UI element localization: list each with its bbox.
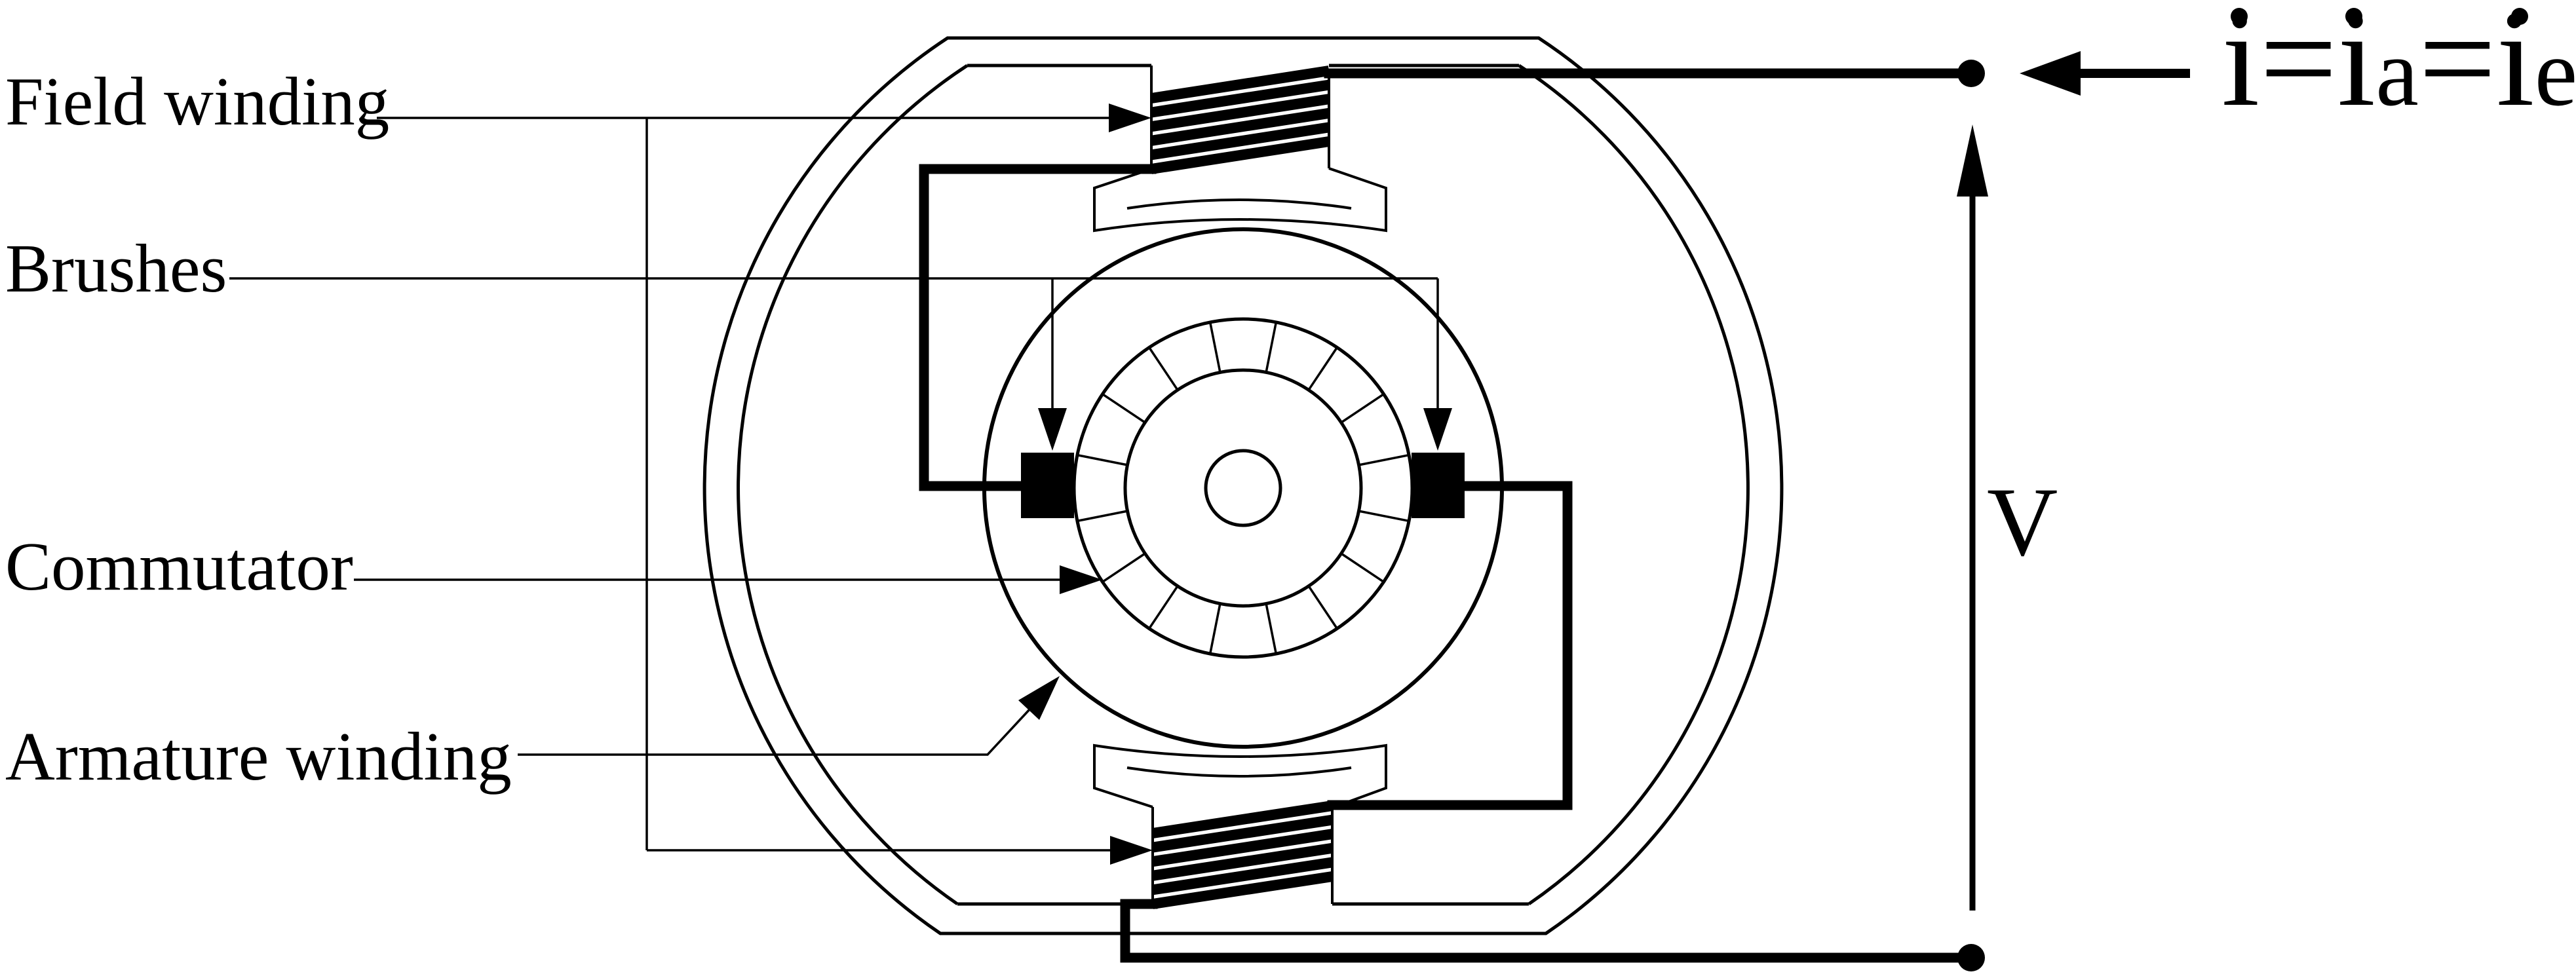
label-brushes: Brushes bbox=[5, 230, 227, 307]
label-field-winding: Field winding bbox=[5, 63, 389, 140]
dot-over-i3 bbox=[2511, 8, 2528, 25]
eq-sub-e: e bbox=[2535, 19, 2576, 126]
dot-over-i2 bbox=[2345, 8, 2362, 25]
pole-shoe-top-inner-arc bbox=[1127, 200, 1351, 208]
commutator-segment-divider bbox=[1266, 604, 1276, 654]
commutator-segment-divider bbox=[1210, 322, 1220, 373]
leader-brushes bbox=[229, 278, 1438, 409]
shaft-circle bbox=[1206, 451, 1280, 525]
brush-right bbox=[1412, 453, 1465, 518]
commutator-segment-divider bbox=[1149, 586, 1178, 629]
current-equation: i=ia=ie bbox=[2221, 0, 2576, 135]
pole-shoe-bottom-inner-arc bbox=[1127, 768, 1351, 776]
commutator-segment-divider bbox=[1103, 554, 1145, 582]
commutator-inner-circle bbox=[1125, 370, 1361, 606]
commutator-segment-divider bbox=[1359, 511, 1410, 521]
commutator-segment-divider bbox=[1077, 511, 1128, 521]
eq-sub-a: a bbox=[2375, 19, 2419, 126]
field-winding-arrowhead-bottom bbox=[1110, 836, 1153, 865]
commutator-segment-divider bbox=[1103, 394, 1145, 423]
field-winding-arrowhead-top bbox=[1109, 103, 1151, 132]
field-pole-top bbox=[1094, 66, 1386, 231]
commutator-segment-divider bbox=[1210, 604, 1220, 654]
brush-left bbox=[1021, 453, 1074, 518]
label-commutator: Commutator bbox=[5, 528, 353, 605]
voltage-arrow bbox=[1957, 124, 1988, 911]
dot-over-i1 bbox=[2231, 8, 2248, 25]
commutator-segment-lines bbox=[1077, 322, 1409, 654]
voltage-arrowhead bbox=[1957, 124, 1988, 197]
eq-equals2: = bbox=[2419, 0, 2496, 135]
field-coil-top bbox=[1151, 71, 1329, 169]
current-arrowhead bbox=[2020, 51, 2081, 96]
stator-housing bbox=[704, 38, 1782, 933]
commutator-segment-divider bbox=[1309, 348, 1337, 390]
commutator-segment-divider bbox=[1266, 322, 1276, 373]
voltage-label: V bbox=[1987, 468, 2058, 576]
commutator-segment-divider bbox=[1309, 586, 1337, 629]
housing-outer-wall bbox=[704, 38, 1782, 933]
terminal-dot-bottom bbox=[1957, 944, 1985, 971]
current-arrow bbox=[2020, 51, 2190, 96]
terminal-dot-top bbox=[1957, 60, 1985, 87]
label-armature-winding: Armature winding bbox=[5, 718, 512, 795]
commutator-segment-divider bbox=[1341, 394, 1384, 423]
motor-diagram: V i=ia=ie Field winding Brushes Commutat… bbox=[0, 0, 2576, 978]
commutator-segment-divider bbox=[1341, 554, 1384, 582]
brush-arrowhead-left bbox=[1038, 408, 1067, 451]
commutator-segment-divider bbox=[1077, 455, 1128, 465]
leader-armature-winding bbox=[518, 709, 1030, 755]
field-coil-bottom bbox=[1153, 806, 1332, 904]
commutator-segment-divider bbox=[1359, 455, 1410, 465]
brush-arrowhead-right bbox=[1423, 408, 1452, 451]
eq-equals1: = bbox=[2259, 0, 2337, 135]
commutator-segment-divider bbox=[1149, 348, 1178, 390]
